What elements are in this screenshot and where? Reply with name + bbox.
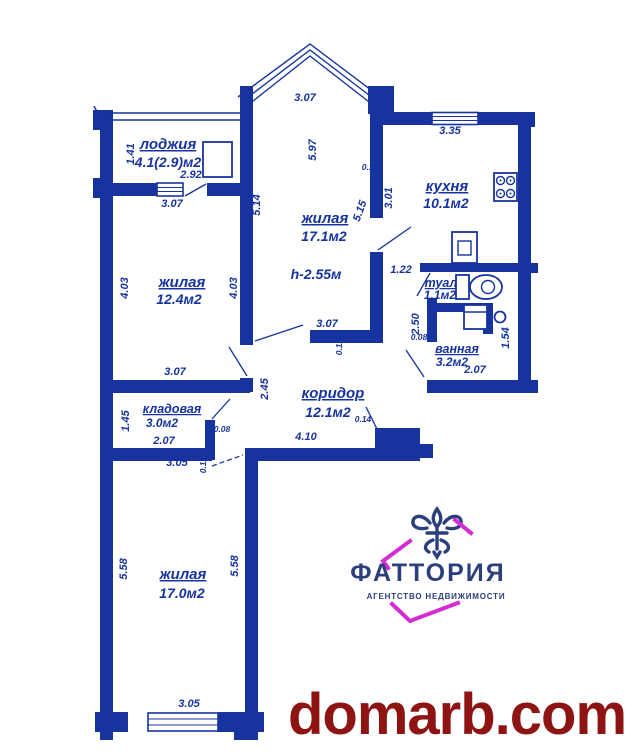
wall-bath-left (427, 298, 437, 342)
living-top-label: жилая (301, 210, 349, 227)
dim-wall-008b: 0.08 (214, 424, 231, 434)
dim-bottomroom-width: 3.05 (178, 698, 200, 710)
toilet-tank (456, 275, 469, 299)
floor-plan-image: лоджия 4.1(2.9)м2 жилая 17.1м2 h-2.55м к… (0, 0, 630, 756)
dim-wall-012c: 0.12 (198, 456, 208, 473)
wall-block-bottomleft (95, 712, 128, 732)
living-top-area: 17.1м2 (301, 228, 347, 244)
left-room-door-swing (229, 347, 247, 376)
central-room-door-swing (255, 325, 303, 341)
wall-entrance-step (418, 444, 433, 458)
toilet-icon (456, 275, 502, 299)
living-bottom-area: 17.0м2 (159, 585, 205, 601)
wall-loggia-bottom-left (100, 183, 157, 196)
watermark-text: domarb.com (288, 682, 626, 747)
storage-label: кладовая (143, 402, 202, 416)
wall-central-bottom (310, 330, 383, 343)
loggia-window-frame (157, 183, 183, 196)
washer-body (464, 305, 487, 329)
dim-toproom-bottom: 3.07 (316, 318, 338, 330)
stove-burner-dot (500, 193, 502, 195)
dim-storage-height: 1.45 (120, 409, 132, 431)
wall-right-outer (518, 112, 531, 392)
kitchen-label: кухня (426, 178, 469, 195)
dim-bath-niche: 1.54 (500, 327, 512, 348)
loggia-cabinet-icon (203, 142, 232, 177)
living-left-label: жилая (158, 274, 206, 291)
wall-bottom-stub (234, 731, 249, 740)
wall-leftroom-bottom (100, 380, 250, 393)
wall-bottom-right-seg (218, 712, 264, 732)
dim-loggia-width: 2.92 (179, 169, 201, 181)
loggia-window (157, 183, 183, 196)
washbasin-icon (495, 312, 506, 323)
stove-burner-dot (510, 180, 512, 182)
sink-body (452, 232, 477, 263)
corridor-label: коридор (302, 385, 365, 402)
stove-burner-dot (500, 180, 502, 182)
kitchen-window-frame (432, 113, 478, 125)
toilet-bowl (470, 275, 502, 299)
dim-storage-bottom: 3.05 (166, 457, 188, 469)
stove-burner-dot (510, 193, 512, 195)
fleur-petal (433, 509, 441, 527)
fleur-curl-left (413, 516, 430, 528)
dim-leftroom-top: 3.07 (161, 198, 183, 210)
dim-toproom-right-b: 3.01 (383, 187, 395, 208)
dim-leftroom-bottom: 3.07 (164, 366, 186, 378)
agency-logo: ФАТТОРИЯ АГЕНТСТВО НЕДВИЖИМОСТИ (350, 509, 506, 621)
wall-toilet-top (420, 263, 518, 272)
loggia-label: лоджия (139, 136, 197, 153)
dim-leftroom-left: 4.03 (119, 277, 131, 299)
kitchen-door-swing (378, 227, 411, 250)
corridor-area: 12.1м2 (305, 404, 351, 420)
storage-door-swing (212, 399, 230, 419)
dim-bottomroom-left: 5.58 (118, 557, 130, 579)
dim-toproom-height: 5.97 (307, 138, 319, 160)
storage-area: 3.0м2 (146, 416, 179, 430)
fleur-de-lis-icon (413, 509, 461, 557)
wall-top-kitchen-left (383, 112, 432, 125)
bath-door-swing (406, 350, 424, 377)
bottom-room-door-swing (212, 455, 243, 466)
kitchen-area: 10.1м2 (423, 195, 469, 211)
fleur-point (434, 552, 440, 557)
toilet-area: 1.1м2 (424, 288, 457, 302)
wall-bottomroom-right (245, 448, 258, 740)
dim-storage-width: 2.07 (152, 435, 175, 447)
dim-wall-012a: 0.12 (362, 162, 379, 172)
dim-entry-width: 0.14 (355, 414, 372, 424)
bottom-window-frame (148, 713, 218, 731)
dim-loggia-height: 1.41 (125, 143, 137, 164)
dim-passage-width: 1.22 (390, 264, 411, 276)
kitchen-sink-icon (452, 232, 477, 263)
dim-corridor-left-height: 2.45 (259, 377, 271, 400)
bottom-room-window (148, 713, 218, 731)
fleur-lower-left (426, 540, 433, 552)
living-bottom-label: жилая (159, 566, 207, 583)
ceiling-height-note: h-2.55м (291, 266, 342, 282)
wall-central-right-upper (370, 95, 383, 218)
wall-left-outer (100, 112, 113, 740)
kitchen-window (432, 113, 478, 125)
loggia-door-swing (185, 184, 206, 196)
wall-bath-bottom (427, 380, 538, 393)
bay-glass-line-outer (238, 44, 383, 99)
dim-kitchen-window: 3.35 (439, 125, 461, 137)
loggia-glazing (94, 106, 240, 121)
wall-entrance-block (375, 428, 420, 461)
wall-corridor-bottom (245, 448, 378, 461)
agency-name: ФАТТОРИЯ (350, 559, 506, 587)
bath-label: ванная (435, 342, 479, 356)
wall-right-protrusion (531, 263, 538, 273)
agency-tagline: АГЕНТСТВО НЕДВИЖИМОСТИ (367, 592, 506, 601)
wall-top-kitchen-right (478, 112, 518, 125)
dim-bath-width: 2.07 (463, 364, 486, 376)
stove-icon (494, 173, 517, 201)
dim-bottomroom-right: 5.58 (229, 554, 241, 576)
loggia-area: 4.1(2.9)м2 (134, 154, 202, 170)
wall-central-right-lower (370, 252, 383, 342)
living-left-area: 12.4м2 (156, 291, 202, 307)
wall-storage-bottom (100, 448, 212, 461)
dim-wall-008a: 0.08 (411, 332, 428, 342)
dim-bay-width: 3.07 (294, 92, 316, 104)
dim-wall-012b: 0.12 (334, 338, 344, 355)
dim-toproom-left: 5.14 (251, 194, 263, 215)
fleur-lower-right (441, 540, 448, 552)
dim-leftroom-right: 4.03 (228, 277, 240, 299)
floor-plan-svg: лоджия 4.1(2.9)м2 жилая 17.1м2 h-2.55м к… (0, 0, 630, 756)
dim-corridor-width: 4.10 (294, 431, 317, 443)
dim-toproom-right-a: 5.15 (351, 198, 370, 223)
logo-bracket-bottom (392, 603, 458, 621)
washer-icon (464, 305, 487, 329)
